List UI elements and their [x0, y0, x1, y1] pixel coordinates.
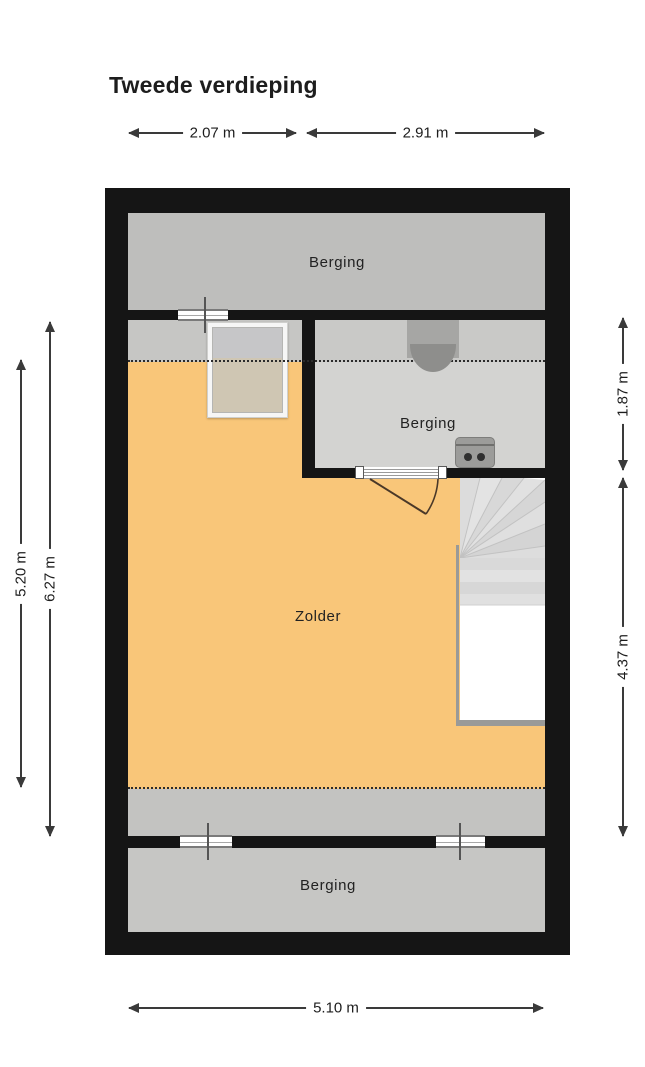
floorplan-page: Tweede verdieping 2.07 m 2.91 m	[0, 0, 645, 1067]
vent-knob-icon	[464, 453, 472, 461]
dimension-right-bottom: 4.37 m	[615, 478, 631, 836]
arrow-left-icon	[128, 128, 139, 138]
room-label-berging-bottom: Berging	[268, 877, 388, 894]
room-zolder-floor	[128, 362, 302, 789]
zolder-low-headroom-bottom	[128, 789, 545, 836]
dimension-top-right: 2.91 m	[307, 125, 544, 141]
dimension-label: 4.37 m	[614, 627, 633, 687]
room-label-zolder: Zolder	[258, 608, 378, 625]
dimension-left-outer: 6.27 m	[42, 322, 58, 836]
window-tick	[204, 297, 206, 333]
room-label-berging-top: Berging	[277, 254, 397, 271]
arrow-up-icon	[618, 317, 628, 328]
ventilation-unit-icon	[455, 437, 495, 468]
room-label-berging-middle: Berging	[368, 415, 488, 432]
stair-railing	[456, 545, 459, 726]
dimension-left-inner: 5.20 m	[13, 360, 29, 787]
arrow-left-icon	[306, 128, 317, 138]
window-icon	[178, 309, 228, 321]
arrow-down-icon	[618, 460, 628, 471]
arrow-right-icon	[534, 128, 545, 138]
window-icon	[180, 835, 232, 848]
arrow-down-icon	[16, 777, 26, 788]
dimension-bottom: 5.10 m	[129, 1000, 543, 1016]
arrow-down-icon	[45, 826, 55, 837]
headroom-dotted-line-bottom	[128, 787, 545, 789]
dimension-label: 5.10 m	[306, 999, 366, 1018]
room-zolder-floor	[460, 726, 545, 789]
headroom-dotted-line-top	[128, 360, 545, 362]
dimension-label: 6.27 m	[41, 549, 60, 609]
door-swing-icon	[350, 470, 460, 530]
skylight-glass	[212, 327, 283, 413]
arrow-up-icon	[16, 359, 26, 370]
arrow-right-icon	[533, 1003, 544, 1013]
skylight-window-icon	[207, 322, 288, 418]
window-tick	[459, 823, 461, 860]
vent-knob-icon	[477, 453, 485, 461]
dimension-right-top: 1.87 m	[615, 318, 631, 470]
arrow-up-icon	[45, 321, 55, 332]
winder-staircase-icon	[460, 478, 545, 720]
stair-railing	[456, 720, 545, 726]
arrow-down-icon	[618, 826, 628, 837]
dimension-label: 5.20 m	[12, 544, 31, 604]
dimension-top-left: 2.07 m	[129, 125, 296, 141]
arrow-up-icon	[618, 477, 628, 488]
arrow-left-icon	[128, 1003, 139, 1013]
dimension-label: 2.07 m	[183, 124, 243, 143]
arrow-right-icon	[286, 128, 297, 138]
dimension-label: 2.91 m	[396, 124, 456, 143]
dimension-label: 1.87 m	[614, 364, 633, 424]
page-title: Tweede verdieping	[109, 72, 318, 99]
window-tick	[207, 823, 209, 860]
